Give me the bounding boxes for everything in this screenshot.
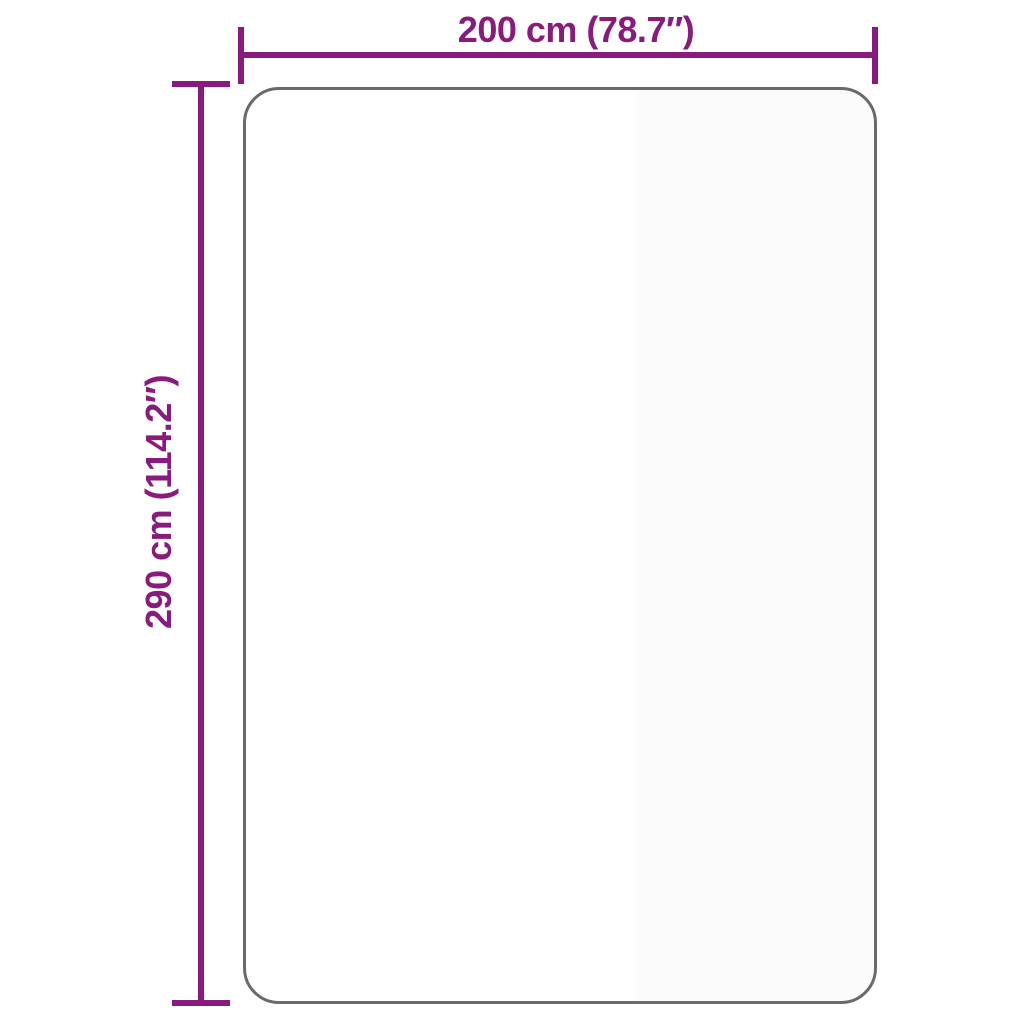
- height-dimension-label: 290 cm (114.2″): [141, 375, 177, 629]
- width-dimension-tick-right: [872, 27, 878, 84]
- width-dimension-tick-left: [238, 27, 244, 84]
- width-dimension-line: [240, 52, 876, 58]
- height-dimension-line: [198, 81, 204, 1006]
- dimension-diagram: 200 cm (78.7″) 290 cm (114.2″): [0, 0, 1024, 1024]
- height-dimension-tick-bottom: [172, 1000, 230, 1006]
- rug-outline: [243, 87, 877, 1004]
- width-dimension-label: 200 cm (78.7″): [458, 12, 694, 48]
- height-dimension-tick-top: [172, 81, 230, 87]
